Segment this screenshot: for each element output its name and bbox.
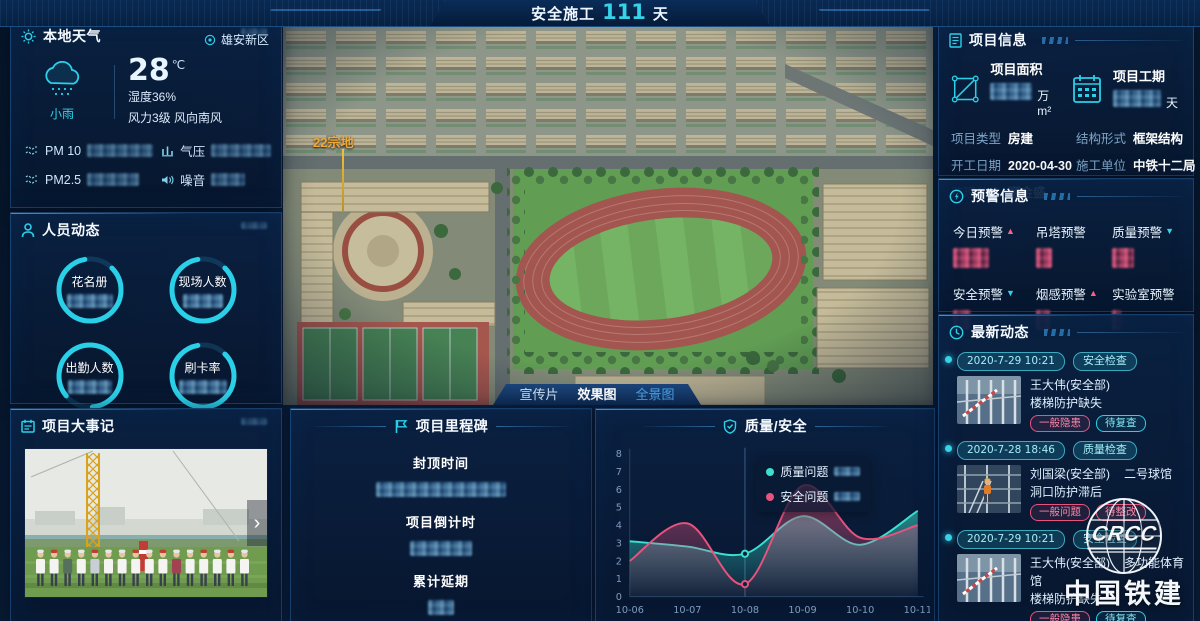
header-dashes (1044, 193, 1070, 200)
events-panel-header: 项目大事记 (11, 409, 281, 440)
field-structure-form: 结构形式框架结构 (1076, 128, 1196, 147)
metric-pm25: PM2.5 (25, 170, 153, 189)
censored-value (211, 173, 245, 186)
area-icon (949, 72, 981, 106)
sun-icon (21, 29, 36, 44)
gauge-card-swipe-rate[interactable]: 刷卡率 (167, 340, 239, 412)
trend-arrow: ▼ (1165, 227, 1174, 236)
personnel-panel-title: 人员动态 (42, 220, 100, 240)
censored-value (179, 380, 227, 394)
stat-label: 项目面积 (990, 59, 1062, 78)
header-wing (314, 426, 386, 427)
chart-panel-header: 质量/安全 (596, 409, 934, 440)
svg-text:3: 3 (616, 538, 622, 549)
milestone-panel-header: 项目里程碑 (291, 409, 591, 440)
weather-location-label: 雄安新区 (221, 31, 269, 48)
safety-days-label: 安全施工 (531, 3, 595, 24)
chart-tooltip: 质量问题 安全问题 (756, 456, 870, 512)
feed-item[interactable]: 2020-7-29 10:21 安全检查 王大伟(安 (957, 352, 1185, 432)
svg-text:10-10: 10-10 (846, 605, 874, 616)
feed-photo[interactable] (957, 554, 1021, 602)
alert-label: 安全预警 (953, 284, 1003, 303)
project-events-panel: 项目大事记 (10, 408, 282, 621)
campus-3d-render (283, 26, 933, 405)
feed-person: 刘国梁(安全部) (1030, 467, 1110, 481)
alert-quality: 质量预警▼ (1112, 222, 1179, 268)
feed-panel-title: 最新动态 (971, 322, 1029, 342)
gauge-roster[interactable]: 花名册 (54, 254, 126, 326)
feed-time-badge: 2020-7-29 10:21 (957, 352, 1065, 371)
censored-value (211, 144, 271, 157)
trend-arrow: ▲ (1089, 289, 1098, 298)
noise-speaker-icon (161, 174, 174, 186)
events-panel-title: 项目大事记 (42, 416, 115, 436)
temperature-unit: ℃ (172, 58, 185, 72)
svg-text:0: 0 (616, 592, 622, 603)
personnel-gauges: 花名册 现场人数 出勤人数 (11, 244, 281, 412)
top-header-bar: 安全施工 111 天 (0, 0, 1200, 27)
feed-time-badge: 2020-7-28 18:46 (957, 441, 1065, 460)
timeline-dot (945, 534, 952, 541)
field-value: 2020-04-30 (1008, 159, 1072, 173)
info-panel-title: 项目信息 (969, 30, 1027, 50)
censored-value (1036, 248, 1052, 268)
carousel-next-button[interactable]: › (247, 500, 267, 546)
gauge-onsite-count[interactable]: 现场人数 (167, 254, 239, 326)
rain-cloud-icon (39, 61, 85, 99)
svg-text:4: 4 (616, 521, 622, 532)
alarm-icon (949, 189, 964, 204)
field-project-type: 项目类型房建 (951, 128, 1072, 147)
milestone-panel-title: 项目里程碑 (416, 416, 489, 436)
header-deco-mosaic (241, 222, 267, 229)
feed-tag: 一般隐患 (1030, 611, 1090, 621)
field-value: 框架结构 (1133, 132, 1183, 146)
legend-label-quality: 质量问题 (780, 463, 828, 480)
alert-tower-crane: 吊塔预警 (1036, 222, 1106, 268)
safety-days-value: 111 (602, 2, 646, 23)
svg-text:10-11: 10-11 (904, 605, 930, 616)
project-stats: 项目面积 万m² (939, 54, 1193, 120)
metric-pm10: PM 10 (25, 141, 153, 160)
svg-text:10-08: 10-08 (731, 605, 759, 616)
wind: 风力3级 风向南风 (128, 109, 222, 128)
crcc-abbr: CRCC (1087, 523, 1160, 550)
project-info-panel: 项目信息 项目面积 万m² (938, 22, 1194, 176)
censored-value (990, 83, 1032, 100)
legend-label-safety: 安全问题 (780, 488, 828, 505)
header-dashes (1042, 37, 1068, 44)
weather-location: 雄安新区 (204, 31, 269, 48)
air-metrics: PM 10 气压 PM2.5 (11, 127, 281, 189)
gauge-attendance-count[interactable]: 出勤人数 (54, 340, 126, 412)
alerts-panel-header: 预警信息 (939, 179, 1193, 210)
legend-item-quality: 质量问题 (766, 463, 860, 480)
milestone-cumulative-delay: 累计延期 (291, 571, 591, 617)
clock-icon (949, 325, 964, 340)
censored-value (1113, 90, 1161, 107)
weather-current: 小雨 28 ℃ 湿度36% 风力3级 风向南风 (11, 50, 281, 127)
svg-text:1: 1 (616, 574, 622, 585)
alerts-panel-title: 预警信息 (971, 186, 1029, 206)
feed-tag: 待复查 (1096, 611, 1146, 621)
header-ornament-left (264, 9, 381, 19)
header-ornament-right (818, 9, 935, 19)
milestone-panel: 项目里程碑 封顶时间 项目倒计时 累计延期 (290, 408, 592, 621)
page-title: 安全施工 111 天 (531, 0, 669, 26)
tab-rendering[interactable]: 效果图 (577, 388, 616, 401)
gauge-label: 花名册 (71, 273, 107, 290)
chart-area: 01234567810-0610-0710-0810-0910-1010-11 … (596, 440, 934, 620)
chart-panel-title: 质量/安全 (745, 416, 807, 436)
field-value: 中铁十二局 (1133, 159, 1196, 173)
feed-tag: 一般隐患 (1030, 415, 1090, 432)
svg-text:10-09: 10-09 (788, 605, 816, 616)
censored-value (410, 541, 472, 556)
crcc-globe-icon: CRCC (1080, 492, 1168, 580)
calendar-note-icon (21, 419, 35, 433)
header-wing (815, 426, 887, 427)
shield-check-icon (723, 419, 737, 434)
censored-value (376, 482, 506, 497)
alert-label: 今日预警 (953, 222, 1003, 241)
censored-value (834, 467, 860, 476)
alert-label: 实验室预警 (1112, 284, 1175, 303)
metric-noise: 噪音 (161, 170, 271, 189)
viewer-tabbar: 宣传片 效果图 全景图 (493, 384, 701, 405)
temperature-value: 28 (128, 56, 170, 86)
personnel-panel-header: 人员动态 (11, 213, 281, 244)
alert-label: 质量预警 (1112, 222, 1162, 241)
timeline-dot (945, 445, 952, 452)
stat-unit: 万m² (1037, 87, 1062, 118)
calendar-icon (1070, 72, 1104, 106)
svg-text:2: 2 (616, 556, 622, 567)
dashboard: 安全施工 111 天 (0, 0, 1200, 621)
alert-today: 今日预警▲ (953, 222, 1030, 268)
header-line (1075, 40, 1183, 41)
field-start-date: 开工日期2020-04-30 (951, 155, 1072, 174)
censored-value (67, 294, 113, 308)
censored-value (87, 144, 153, 157)
feed-person: 王大伟(安全部) (1030, 378, 1110, 392)
event-photo-carousel[interactable]: › (24, 448, 268, 598)
field-value: 房建 (1008, 132, 1033, 146)
svg-text:10-06: 10-06 (616, 605, 644, 616)
censored-value (953, 248, 989, 268)
info-panel-header: 项目信息 (939, 23, 1193, 54)
alerts-panel: 预警信息 今日预警▲ 吊塔预警 质量预警▼ 安全预警▼ 烟感预警▲ (938, 178, 1194, 312)
crcc-brand-logo: CRCC 中国铁建 (1048, 492, 1200, 611)
metric-label: PM2.5 (45, 173, 81, 187)
inspection-photo (957, 376, 1021, 424)
personnel-panel: 人员动态 花名册 现场人数 (10, 212, 282, 404)
feed-photo[interactable] (957, 376, 1021, 424)
svg-text:7: 7 (616, 467, 622, 478)
svg-text:10-07: 10-07 (673, 605, 701, 616)
metric-pressure: 气压 (161, 141, 271, 160)
milestone-label: 封顶时间 (291, 453, 591, 472)
alert-label: 烟感预警 (1036, 284, 1086, 303)
inspection-photo (957, 554, 1021, 602)
safety-days-unit: 天 (653, 3, 669, 24)
feed-issue: 楼梯防护缺失 (1030, 394, 1146, 412)
metric-label: 气压 (180, 141, 205, 160)
censored-value (87, 173, 139, 186)
tab-promo-video[interactable]: 宣传片 (519, 388, 558, 401)
field-label: 施工单位 (1076, 159, 1126, 173)
censored-value (428, 600, 454, 615)
timeline-dot (945, 356, 952, 363)
quality-safety-panel: 质量/安全 01234567810-0610-0710-0810-0910-10… (595, 408, 935, 621)
header-wing (496, 426, 568, 427)
censored-value (183, 294, 223, 308)
legend-item-safety: 安全问题 (766, 488, 860, 505)
alert-label: 吊塔预警 (1036, 222, 1086, 241)
flag-icon (394, 419, 408, 434)
field-label: 结构形式 (1076, 132, 1126, 146)
feed-location: 二号球馆 (1124, 467, 1172, 481)
humidity: 湿度36% (128, 88, 222, 107)
svg-text:8: 8 (616, 449, 622, 460)
field-contractor: 施工单位中铁十二局 (1076, 155, 1196, 174)
campus-3d-viewer[interactable]: 22宗地 宣传片 效果图 全景图 (283, 26, 933, 405)
gauge-label: 出勤人数 (65, 359, 113, 376)
feed-tag: 待复查 (1096, 415, 1146, 432)
person-icon (21, 223, 35, 238)
censored-value (834, 492, 860, 501)
group-photo (25, 449, 267, 597)
plot-label-pointer-line (342, 149, 344, 211)
plot-label: 22宗地 (313, 132, 353, 151)
censored-value (68, 380, 112, 394)
dust-icon (25, 145, 39, 157)
feed-panel-header: 最新动态 (939, 315, 1193, 346)
metric-label: PM 10 (45, 144, 81, 158)
stat-unit: 天 (1166, 94, 1178, 111)
weather-panel: 本地天气 雄安新区 小雨 (10, 18, 282, 208)
field-label: 项目类型 (951, 132, 1001, 146)
gauge-label: 现场人数 (178, 273, 226, 290)
divider (114, 65, 115, 119)
svg-text:5: 5 (616, 503, 622, 514)
tab-panorama[interactable]: 全景图 (636, 388, 675, 401)
milestone-countdown: 项目倒计时 (291, 512, 591, 558)
milestone-topping-time: 封顶时间 (291, 453, 591, 499)
location-target-icon (204, 34, 216, 46)
header-line (1077, 332, 1183, 333)
metric-label: 噪音 (180, 170, 205, 189)
legend-dot-quality (766, 468, 774, 476)
milestone-label: 项目倒计时 (291, 512, 591, 531)
header-line (1077, 196, 1183, 197)
feed-photo[interactable] (957, 465, 1021, 513)
stat-project-duration: 项目工期 天 (1070, 59, 1183, 118)
gauge-label: 刷卡率 (184, 359, 220, 376)
stat-project-area: 项目面积 万m² (949, 59, 1062, 118)
inspection-photo (957, 465, 1021, 513)
header-wing (643, 426, 715, 427)
feed-category-badge: 安全检查 (1073, 352, 1137, 371)
weather-panel-title: 本地天气 (43, 26, 101, 46)
svg-text:6: 6 (616, 485, 622, 496)
weather-condition: 小雨 (23, 105, 101, 122)
field-label: 开工日期 (951, 159, 1001, 173)
document-icon (949, 33, 962, 48)
header-dashes (1044, 329, 1070, 336)
pressure-icon (161, 145, 174, 157)
milestone-label: 累计延期 (291, 571, 591, 590)
trend-arrow: ▲ (1006, 227, 1015, 236)
trend-arrow: ▼ (1006, 289, 1015, 298)
dust-icon (25, 174, 39, 186)
stat-label: 项目工期 (1113, 66, 1178, 85)
header-deco-mosaic (241, 418, 267, 425)
feed-category-badge: 质量检查 (1073, 441, 1137, 460)
censored-value (1112, 248, 1134, 268)
alerts-grid: 今日预警▲ 吊塔预警 质量预警▼ 安全预警▼ 烟感预警▲ 实验室预警 (939, 210, 1193, 330)
legend-dot-safety (766, 493, 774, 501)
